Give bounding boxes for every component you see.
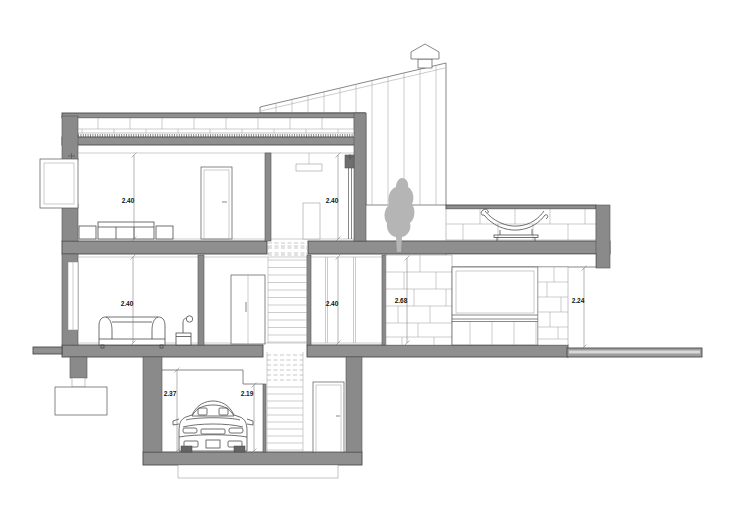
terrace-fascia <box>446 254 596 267</box>
terrace-parapet-post <box>596 205 610 268</box>
roof-slab <box>62 113 365 145</box>
chimney <box>411 44 439 68</box>
interior-wall-ground-left <box>198 255 204 345</box>
ground-line-right <box>567 348 702 357</box>
pendant-light <box>296 153 322 171</box>
dimension-exterior-right: 2.24 <box>572 266 587 350</box>
dimension-upper-right: 2.40 <box>326 153 341 242</box>
basement-wall-right <box>346 357 362 452</box>
stairs-ground-floor <box>268 246 307 343</box>
dim-label: 2.37 <box>164 390 177 397</box>
bed <box>79 222 173 239</box>
footing-left <box>55 387 107 415</box>
basement-floor-slab <box>143 452 362 478</box>
interior-wall-ground-mid <box>307 255 311 345</box>
nightstand-left <box>79 226 96 239</box>
dim-label: 2.68 <box>395 297 408 304</box>
interior-wall-upper <box>265 153 271 241</box>
basement-wall-left <box>143 357 162 452</box>
terrace-door <box>345 154 354 239</box>
dim-label: 2.40 <box>122 197 135 204</box>
basement <box>143 352 362 452</box>
basement-wall-stair <box>263 384 266 452</box>
dim-label: 2.19 <box>241 390 254 397</box>
section-drawing: 2.40 2.40 2.40 2.40 2.68 2.24 2.37 2.19 <box>0 0 749 530</box>
terrace-parapet-cap <box>446 205 596 209</box>
dim-label: 2.40 <box>121 300 134 307</box>
dim-label: 2.40 <box>326 300 339 307</box>
dimension-basement-garage: 2.37 <box>164 368 180 454</box>
stairs-basement <box>267 352 303 452</box>
ground-line-left <box>33 347 62 354</box>
floor-lamp <box>183 316 193 333</box>
wardrobe <box>231 275 265 344</box>
footing-basement <box>178 465 338 478</box>
dim-label: 2.40 <box>326 197 339 204</box>
dimension-ground-middle: 2.40 <box>326 255 341 346</box>
sofa <box>99 317 165 348</box>
exterior-wall-upper-right <box>354 113 366 241</box>
upper-floor-slab <box>62 241 610 254</box>
cabinet-upper <box>303 203 320 239</box>
drawing-canvas: 2.40 2.40 2.40 2.40 2.68 2.24 2.37 2.19 <box>0 0 749 530</box>
terrace <box>446 205 610 268</box>
door-basement <box>313 382 344 452</box>
dim-label: 2.24 <box>572 297 585 304</box>
garage-car <box>173 401 253 452</box>
side-table <box>176 333 191 345</box>
window-upper-left <box>40 153 78 208</box>
roof-block-course <box>66 118 361 133</box>
door-upper-floor <box>201 167 232 239</box>
ground-floor-slab <box>33 345 702 357</box>
nightstand-right <box>156 226 173 239</box>
window-ground-left <box>68 262 78 330</box>
stair-void-upper-dashed <box>268 243 307 253</box>
window-wall-ground-right <box>452 267 538 345</box>
masonry-wall-right <box>538 267 568 345</box>
